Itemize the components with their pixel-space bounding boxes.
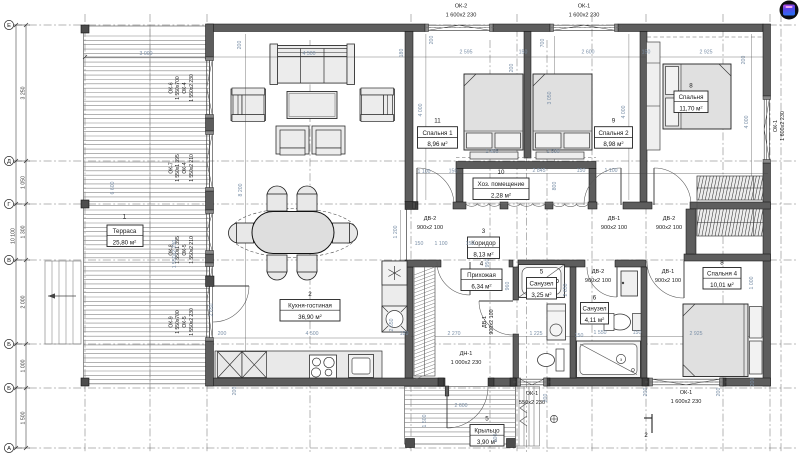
svg-text:4: 4 [480,261,484,268]
svg-text:3 000: 3 000 [140,51,153,57]
svg-text:200: 200 [493,434,499,443]
svg-text:3,25 м2: 3,25 м2 [531,291,552,299]
svg-text:5: 5 [485,416,489,423]
svg-text:2,28 м2: 2,28 м2 [491,191,512,199]
svg-text:2 595: 2 595 [460,50,473,56]
svg-text:6: 6 [593,295,597,302]
svg-text:25,80 м2: 25,80 м2 [113,238,137,246]
svg-text:4 500: 4 500 [303,51,316,57]
svg-text:150: 150 [415,241,424,247]
svg-text:1 500: 1 500 [21,411,27,424]
svg-text:Крыльцо: Крыльцо [474,428,500,435]
svg-text:Хоз. помещение: Хоз. помещение [478,181,526,188]
svg-text:1 600х2 230: 1 600х2 230 [671,399,702,405]
svg-text:150: 150 [633,330,642,336]
svg-text:Е: Е [7,23,11,29]
svg-text:180: 180 [399,49,405,58]
svg-text:200: 200 [429,36,435,45]
svg-text:ДВ-2: ДВ-2 [592,269,605,275]
svg-text:8 200: 8 200 [238,183,244,196]
svg-text:Прихожая: Прихожая [467,272,496,279]
svg-text:4 000: 4 000 [418,103,424,116]
svg-text:2 650: 2 650 [389,318,395,331]
svg-text:2 000: 2 000 [21,295,27,308]
svg-text:1 550х700: 1 550х700 [175,310,181,334]
svg-text:2 650: 2 650 [209,303,215,316]
svg-text:550х2 230: 550х2 230 [519,400,545,406]
svg-text:10,01 м2: 10,01 м2 [710,281,734,289]
svg-text:2 925: 2 925 [700,50,713,56]
svg-text:900х2 100: 900х2 100 [489,309,495,334]
svg-text:10 100: 10 100 [11,228,17,244]
svg-text:1 500: 1 500 [422,414,428,427]
svg-text:1 050: 1 050 [21,176,27,189]
svg-text:9: 9 [612,118,616,125]
svg-text:ДВ-1: ДВ-1 [482,316,488,328]
svg-text:6 600: 6 600 [110,181,116,194]
svg-text:Кухня-гостиная: Кухня-гостиная [288,303,332,310]
svg-text:700: 700 [540,39,546,48]
svg-text:ОК-1: ОК-1 [773,120,779,132]
svg-text:ОК-1: ОК-1 [526,391,539,397]
svg-text:150: 150 [449,169,458,175]
svg-text:200: 200 [643,388,649,397]
svg-text:2 600: 2 600 [455,403,468,409]
svg-text:2 650: 2 650 [563,283,569,296]
svg-text:2 270: 2 270 [448,331,461,337]
svg-text:4 000: 4 000 [744,115,750,128]
svg-text:900х2 100: 900х2 100 [601,225,627,231]
svg-text:А: А [7,446,11,452]
svg-text:ОК-7: ОК-7 [169,162,175,173]
svg-text:Спальня 1: Спальня 1 [422,130,453,137]
svg-text:180: 180 [400,331,409,337]
svg-text:1 550: 1 550 [594,330,607,336]
svg-text:900х2 100: 900х2 100 [417,225,443,231]
svg-text:36,90 м2: 36,90 м2 [298,313,322,321]
svg-text:5: 5 [540,269,544,276]
svg-text:Д: Д [7,159,11,165]
svg-text:1 550х2 210: 1 550х2 210 [189,154,195,182]
svg-text:1 550х1 395: 1 550х1 395 [175,154,181,182]
svg-text:Терраса: Терраса [113,228,137,235]
svg-text:150: 150 [577,168,586,174]
svg-text:11,70 м2: 11,70 м2 [679,104,703,112]
svg-text:3 250: 3 250 [21,86,27,99]
svg-text:ДН-1: ДН-1 [460,351,473,357]
svg-text:ОК-4: ОК-4 [182,162,188,173]
svg-text:ОК-5: ОК-5 [182,244,188,255]
svg-text:Санузел: Санузел [529,281,553,288]
svg-text:1 300: 1 300 [21,225,27,238]
svg-text:Б: Б [7,342,11,348]
svg-text:2: 2 [308,291,312,298]
svg-text:950: 950 [485,259,491,268]
svg-text:1 495: 1 495 [486,149,499,155]
svg-text:2 925: 2 925 [690,331,703,337]
svg-text:В: В [7,258,11,264]
svg-text:8,13 м2: 8,13 м2 [473,250,494,258]
svg-text:2 600: 2 600 [582,50,595,56]
svg-text:4 500: 4 500 [306,331,319,337]
svg-text:200: 200 [750,378,756,387]
svg-text:ДВ-1: ДВ-1 [608,216,621,222]
svg-text:Коридор: Коридор [471,240,496,247]
svg-text:200: 200 [716,388,722,397]
svg-text:10: 10 [498,169,505,176]
svg-text:1 500: 1 500 [547,149,560,155]
svg-text:3 050: 3 050 [547,91,553,104]
svg-text:1 550х2 230: 1 550х2 230 [172,240,178,269]
svg-text:200: 200 [218,331,227,337]
svg-text:1 600х2 230: 1 600х2 230 [446,13,477,19]
svg-text:150: 150 [642,50,651,56]
svg-text:8,98 м2: 8,98 м2 [603,140,624,148]
svg-text:960: 960 [505,282,511,291]
svg-text:1 550х2 230: 1 550х2 230 [189,308,195,336]
svg-text:1 600х2 230: 1 600х2 230 [780,111,786,141]
svg-text:11: 11 [434,118,441,125]
svg-text:1: 1 [123,214,127,221]
svg-text:200: 200 [232,387,238,396]
svg-text:1 200: 1 200 [393,225,399,238]
svg-text:1 550х700: 1 550х700 [175,76,181,100]
svg-text:ДВ-2: ДВ-2 [424,216,437,222]
svg-text:6,34 м2: 6,34 м2 [471,282,492,290]
svg-text:800: 800 [552,182,558,191]
svg-text:200: 200 [741,56,747,65]
svg-text:1 100: 1 100 [605,168,618,174]
svg-text:ДВ-2: ДВ-2 [663,216,676,222]
svg-text:Спальня 4: Спальня 4 [707,271,738,278]
svg-text:ОК-9: ОК-9 [169,316,175,327]
svg-text:150: 150 [519,50,528,56]
svg-text:Б: Б [7,386,11,392]
svg-text:8: 8 [720,260,724,267]
svg-text:4,11 м2: 4,11 м2 [585,316,606,324]
svg-text:1 000: 1 000 [21,359,27,372]
svg-text:ОК-1: ОК-1 [680,390,693,396]
svg-text:Спальня: Спальня [679,94,704,101]
svg-text:1 100: 1 100 [418,169,431,175]
svg-text:ОК-5: ОК-5 [182,316,188,327]
svg-text:1 550х2 210: 1 550х2 210 [189,236,195,264]
svg-text:900х2 100: 900х2 100 [656,225,682,231]
svg-text:8,96 м2: 8,96 м2 [427,140,448,148]
svg-text:150: 150 [575,333,584,339]
svg-text:ОК-4: ОК-4 [182,82,188,93]
svg-text:1 000: 1 000 [749,276,755,289]
svg-text:1 100: 1 100 [435,241,448,247]
svg-text:4 000: 4 000 [621,105,627,118]
svg-text:ОК-2: ОК-2 [455,4,468,10]
svg-text:Спальня 2: Спальня 2 [598,130,629,137]
svg-text:1 600х2 230: 1 600х2 230 [569,13,600,19]
svg-text:3: 3 [482,228,486,235]
svg-text:900х2 100: 900х2 100 [655,278,681,284]
svg-text:200: 200 [237,41,243,50]
svg-text:8: 8 [689,83,693,90]
svg-text:1 550х2 230: 1 550х2 230 [189,74,195,102]
svg-text:900х2 100: 900х2 100 [585,278,611,284]
svg-text:200: 200 [509,64,515,73]
svg-text:200: 200 [543,394,549,403]
svg-text:ОК-1: ОК-1 [578,4,591,10]
svg-text:1 000х2 230: 1 000х2 230 [451,360,482,366]
svg-text:Санузел: Санузел [582,306,606,313]
svg-text:ДВ-1: ДВ-1 [662,269,675,275]
svg-text:ОК-6: ОК-6 [169,82,175,93]
svg-text:1 225: 1 225 [530,331,543,337]
svg-text:2 845: 2 845 [533,168,546,174]
svg-text:150: 150 [466,241,475,247]
